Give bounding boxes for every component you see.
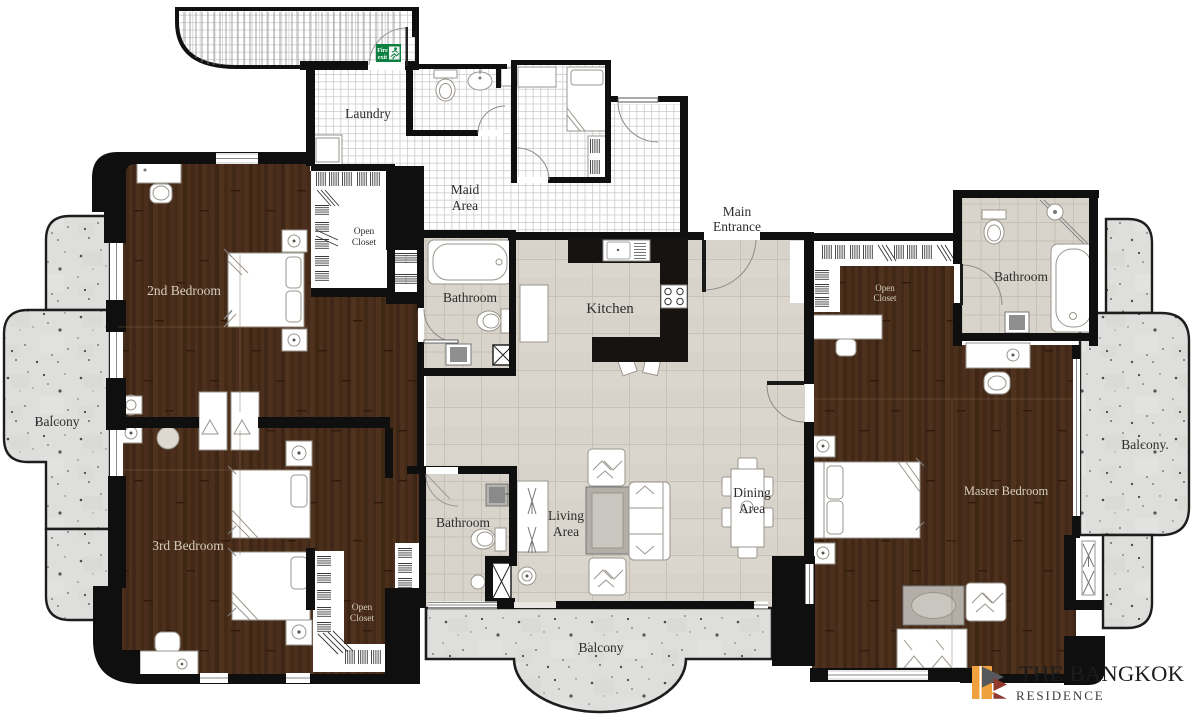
svg-text:Bathroom: Bathroom: [436, 515, 490, 530]
svg-text:Closet: Closet: [352, 238, 377, 248]
svg-text:Closet: Closet: [350, 614, 375, 624]
svg-text:Laundry: Laundry: [345, 106, 391, 121]
svg-text:Main: Main: [723, 204, 752, 219]
svg-text:Fire: Fire: [377, 48, 388, 54]
svg-text:Open: Open: [352, 603, 373, 613]
svg-text:Entrance: Entrance: [713, 219, 761, 234]
svg-text:Dining: Dining: [733, 485, 771, 500]
svg-text:RESIDENCE: RESIDENCE: [1016, 688, 1105, 703]
svg-text:2nd Bedroom: 2nd Bedroom: [147, 283, 221, 298]
svg-text:Area: Area: [553, 524, 579, 539]
svg-text:Bathroom: Bathroom: [994, 269, 1048, 284]
svg-text:Bathroom: Bathroom: [443, 290, 497, 305]
svg-text:Balcony: Balcony: [35, 414, 80, 429]
svg-text:Living: Living: [548, 508, 584, 523]
svg-text:Closet: Closet: [873, 293, 897, 303]
svg-text:Open: Open: [875, 283, 895, 293]
svg-text:Balcony: Balcony: [579, 640, 624, 655]
svg-text:Kitchen: Kitchen: [586, 301, 634, 317]
svg-text:Open: Open: [354, 227, 375, 237]
svg-text:3rd Bedroom: 3rd Bedroom: [152, 538, 224, 553]
svg-text:THE BANGKOK: THE BANGKOK: [1019, 661, 1185, 686]
svg-text:Master Bedroom: Master Bedroom: [964, 484, 1049, 498]
svg-text:Area: Area: [739, 501, 765, 516]
svg-text:Balcony.: Balcony.: [1121, 437, 1169, 452]
svg-text:Maid: Maid: [451, 182, 480, 197]
svg-text:Area: Area: [452, 198, 478, 213]
svg-text:exit: exit: [378, 55, 387, 61]
